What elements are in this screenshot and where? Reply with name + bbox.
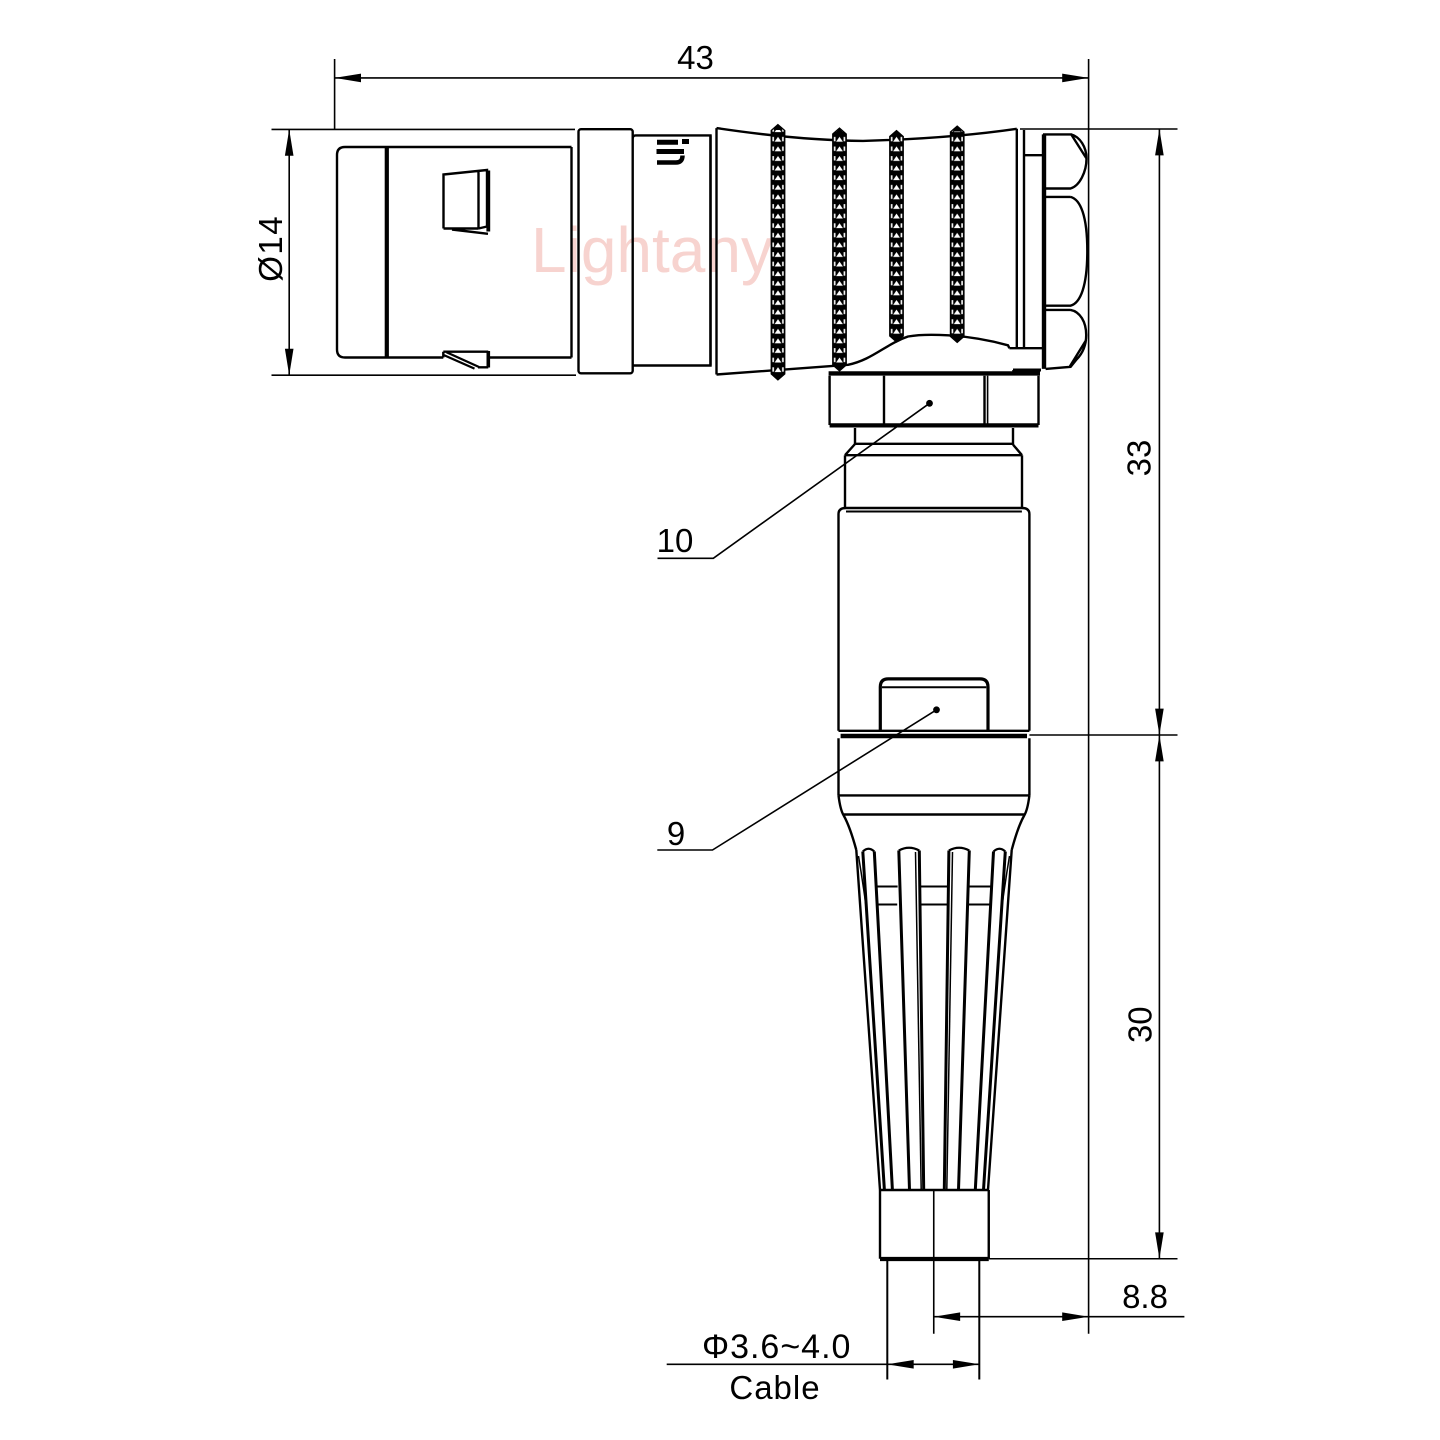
- svg-text:8.8: 8.8: [1122, 1278, 1168, 1315]
- svg-text:33: 33: [1121, 440, 1158, 477]
- svg-text:Ø14: Ø14: [252, 215, 289, 282]
- svg-text:Cable: Cable: [729, 1369, 820, 1406]
- svg-text:30: 30: [1122, 1006, 1159, 1043]
- svg-text:Lightany: Lightany: [531, 214, 773, 286]
- svg-text:10: 10: [657, 522, 694, 559]
- svg-text:9: 9: [667, 815, 685, 852]
- svg-text:43: 43: [677, 39, 714, 76]
- svg-text:Φ3.6~4.0: Φ3.6~4.0: [702, 1328, 852, 1366]
